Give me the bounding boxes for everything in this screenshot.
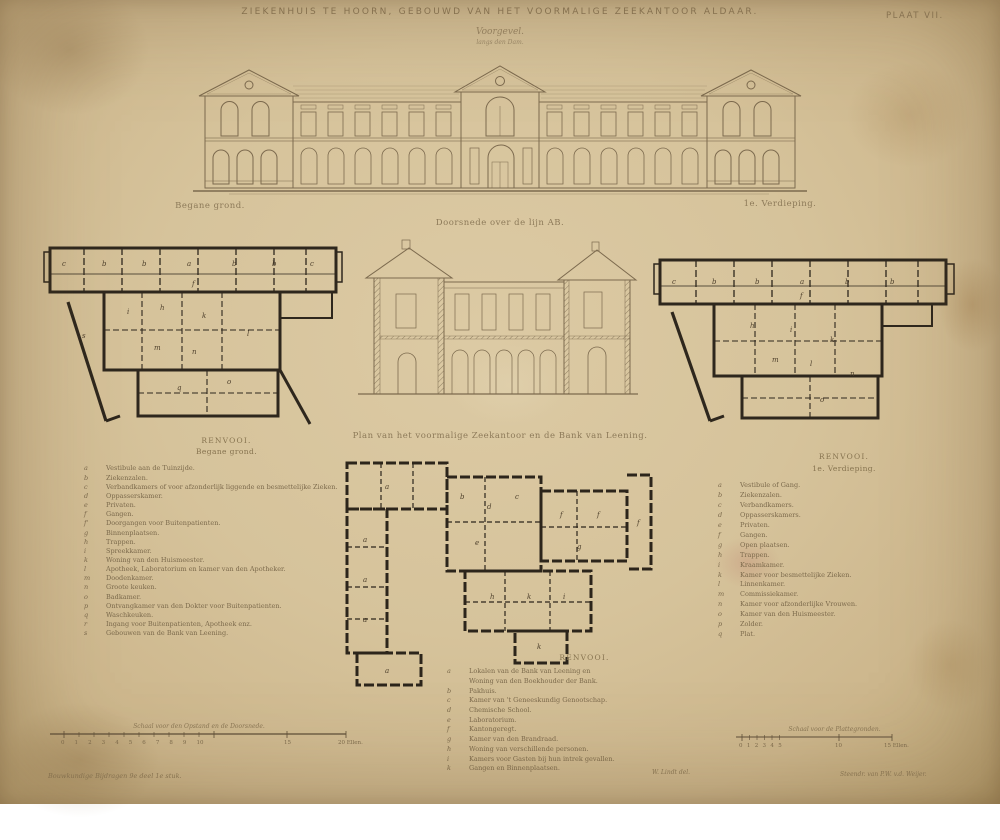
lithographer-credit: Steendr. van P.W. v.d. Weijer. [840, 771, 927, 778]
svg-text:b: b [460, 493, 465, 501]
legend-item-key: g [718, 541, 740, 551]
legend-item-text: Ziekenzalen. [106, 474, 369, 483]
svg-text:h: h [160, 304, 165, 312]
legend-item-text: Linnenkamer. [740, 580, 970, 590]
svg-text:d: d [487, 503, 492, 511]
legend-item: e Privaten. [718, 521, 970, 531]
svg-text:i: i [790, 326, 792, 334]
legend-item: i Kraamkamer. [718, 561, 970, 571]
legend-item-key: p [718, 620, 740, 630]
legend-item-key: o [84, 593, 106, 602]
facade-elevation-drawing [189, 44, 811, 196]
legend-item: d Chemische School. [447, 706, 722, 716]
legend-item: b Pakhuis. [447, 687, 722, 697]
legend-item-key: h [718, 551, 740, 561]
svg-text:c: c [310, 260, 314, 268]
legend-item-text: Vestibule aan de Tuinzijde. [106, 464, 369, 473]
legend-item-text: Commissiekamer. [740, 590, 970, 600]
svg-text:f: f [191, 280, 196, 288]
legend-item: f Kantongeregt. [447, 725, 722, 735]
svg-text:o: o [820, 396, 824, 404]
legend-item: Woning van den Boekhouder der Bank. [447, 677, 722, 687]
legend-item-key: m [84, 574, 106, 583]
legend-item: l Apotheek, Laboratorium en kamer van de… [84, 565, 369, 574]
legend-item: g Open plaatsen. [718, 541, 970, 551]
svg-text:i: i [127, 308, 129, 316]
legend-item-text: Gangen. [740, 531, 970, 541]
legend-item: k Kamer voor besmettelijke Zieken. [718, 571, 970, 581]
svg-text:i: i [563, 593, 565, 601]
legend-item-text: Privaten. [740, 521, 970, 531]
legend-item-key: a [84, 464, 106, 473]
legend-item-key: e [447, 716, 469, 726]
legend-item: p Zolder. [718, 620, 970, 630]
legend-item: n Groote keuken. [84, 583, 369, 592]
legend-item-key: a [718, 481, 740, 491]
legend-item: g Kamer van den Brandraad. [447, 735, 722, 745]
legend-item-text: Pakhuis. [469, 687, 722, 697]
legend-item-text: Kraamkamer. [740, 561, 970, 571]
legend-item-key: d [84, 492, 106, 501]
svg-text:o: o [227, 378, 231, 386]
svg-text:f: f [636, 519, 641, 527]
paper-stain [820, 40, 1000, 190]
legend-item-key: k [447, 764, 469, 774]
legend-item-key: h [447, 745, 469, 755]
legend-item-key: f [718, 531, 740, 541]
legend-item: e Privaten. [84, 501, 369, 510]
legend-item-key: b [447, 687, 469, 697]
legend-item-text: Oppasserskamer. [106, 492, 369, 501]
legend-item-text: Kamer van den Huismeester. [740, 610, 970, 620]
svg-text:b: b [142, 260, 147, 268]
legend-item-key: q [84, 611, 106, 620]
svg-text:a: a [385, 667, 389, 675]
legend-item-key: l [718, 580, 740, 590]
scale-ruler [44, 730, 354, 740]
legend-item: c Verbandkamers of voor afzonderlijk lig… [84, 483, 369, 492]
legend-subtitle: Begane grond. [84, 447, 369, 456]
legend-item-key: f [84, 510, 106, 519]
legend-item: e Laboratorium. [447, 716, 722, 726]
legend-item: k Woning van den Huismeester. [84, 556, 369, 565]
legend-title: RENVOOI. [718, 452, 970, 461]
legend-item: b Ziekenzalen. [84, 474, 369, 483]
svg-text:a: a [187, 260, 191, 268]
legend-item: m Doodenkamer. [84, 574, 369, 583]
legend-item-text: Ingang voor Buitenpatienten, Apotheek en… [106, 620, 369, 629]
legend-item-text: Lokalen van de Bank van Leening en [469, 667, 722, 677]
legend-item-text: Laboratorium. [469, 716, 722, 726]
scale-numbers: 0 1 2 3 4 5 [739, 743, 782, 749]
legend-item-text: Binnenplaatsen. [106, 529, 369, 538]
paper-stain [0, 680, 190, 840]
elevation-subtitle: Voorgevel. [0, 27, 1000, 37]
legend-item: c Kamer van 't Geneeskundig Genootschap. [447, 696, 722, 706]
legend-item-key [447, 677, 469, 687]
plate-number: PLAAT VII. [886, 11, 996, 21]
legend-item: s Gebouwen van de Bank van Leening. [84, 629, 369, 638]
svg-text:m: m [772, 356, 779, 364]
legend-item-key: b [84, 474, 106, 483]
legend-item-text: Verbandkamers. [740, 501, 970, 511]
legend-item: a Vestibule aan de Tuinzijde. [84, 464, 369, 473]
legend-item-text: Woning van den Huismeester. [106, 556, 369, 565]
scale-number-mid: 10 [835, 743, 842, 749]
svg-text:b: b [232, 260, 237, 268]
scale-caption: Schaal voor de Plattegronden. [732, 726, 937, 733]
svg-text:n: n [192, 348, 197, 356]
svg-text:s: s [82, 332, 86, 340]
section-drawing [352, 236, 644, 404]
legend-item-text: Trappen. [740, 551, 970, 561]
scale-caption: Schaal voor den Opstand en de Doorsnede. [44, 723, 354, 730]
legend-item-text: Open plaatsen. [740, 541, 970, 551]
first-floor-plan-drawing: cbbabbfhiklmno [650, 246, 958, 426]
svg-text:b: b [272, 260, 277, 268]
svg-text:c: c [62, 260, 66, 268]
svg-text:c: c [515, 493, 519, 501]
legend-item-key: c [84, 483, 106, 492]
legend-item: o Badkamer. [84, 593, 369, 602]
legend-item-list: a Lokalen van de Bank van Leening en Won… [447, 667, 722, 774]
legend-item-key: l [84, 565, 106, 574]
svg-text:l: l [810, 360, 812, 368]
legend-item-key: k [84, 556, 106, 565]
legend-item-key: g [84, 529, 106, 538]
svg-text:k: k [527, 593, 531, 601]
svg-text:b: b [755, 278, 760, 286]
legend-item-key: f' [84, 519, 106, 528]
legend-item: b Ziekenzalen. [718, 491, 970, 501]
legend-item-key: h [84, 538, 106, 547]
legend-item: p Ontvangkamer van den Dokter voor Buite… [84, 602, 369, 611]
legend-item: h Trappen. [718, 551, 970, 561]
legend-item-key: e [84, 501, 106, 510]
svg-text:b: b [890, 278, 895, 286]
svg-text:b: b [712, 278, 717, 286]
legend-item-key: k [718, 571, 740, 581]
first-floor-label: 1e. Verdieping. [690, 199, 870, 209]
legend-item: m Commissiekamer. [718, 590, 970, 600]
svg-text:k: k [537, 643, 541, 651]
draughtsman-credit: W. Lindt del. [652, 769, 690, 776]
legend-item: i Spreekkamer. [84, 547, 369, 556]
scale-number-mid: 15 [284, 740, 291, 746]
legend-item-list: a Vestibule aan de Tuinzijde. b Ziekenza… [84, 464, 369, 638]
svg-text:h: h [750, 322, 755, 330]
scale-number-end: 20 Ellen. [338, 740, 363, 746]
legend-item: q Plat. [718, 630, 970, 640]
svg-text:a: a [385, 483, 389, 491]
legend-item-key: b [718, 491, 740, 501]
legend-item-key: p [84, 602, 106, 611]
legend-item-text: Trappen. [106, 538, 369, 547]
legend-title: RENVOOI. [447, 653, 722, 662]
legend-item: o Kamer van den Huismeester. [718, 610, 970, 620]
ground-floor-label: Begane grond. [110, 201, 310, 211]
svg-text:m: m [154, 344, 161, 352]
scale-numbers: 0 1 2 3 4 5 6 7 8 9 10 [61, 740, 203, 746]
legend-item-text: Vestibule of Gang. [740, 481, 970, 491]
svg-text:c: c [672, 278, 676, 286]
legend-item-key: g [447, 735, 469, 745]
legend-item-key: c [718, 501, 740, 511]
legend-item-key: i [84, 547, 106, 556]
legend-item-text: Groote keuken. [106, 583, 369, 592]
section-label: Doorsnede over de lijn AB. [390, 218, 610, 228]
svg-text:k: k [830, 336, 834, 344]
legend-item-text: Gebouwen van de Bank van Leening. [106, 629, 369, 638]
legend-item-text: Doodenkamer. [106, 574, 369, 583]
legend-item-text: Kamer van 't Geneeskundig Genootschap. [469, 696, 722, 706]
legend-item: g Binnenplaatsen. [84, 529, 369, 538]
legend-item-list: a Vestibule of Gang. b Ziekenzalen. c Ve… [718, 481, 970, 640]
legend-item-text: Doorgangen voor Buitenpatienten. [106, 519, 369, 528]
svg-text:g: g [577, 543, 582, 551]
legend-item: f' Doorgangen voor Buitenpatienten. [84, 519, 369, 528]
legend-item-text: Plat. [740, 630, 970, 640]
legend-item-key: n [84, 583, 106, 592]
paper-stain [0, 0, 180, 140]
legend-item-text: Verbandkamers of voor afzonderlijk ligge… [106, 483, 369, 492]
svg-text:f: f [596, 511, 601, 519]
legend-item: i Kamers voor Gasten bij hun intrek geva… [447, 755, 722, 765]
legend-item: a Lokalen van de Bank van Leening en [447, 667, 722, 677]
legend-subtitle: 1e. Verdieping. [718, 464, 970, 473]
svg-text:f: f [799, 292, 804, 300]
legend-item-key: n [718, 600, 740, 610]
legend-item-text: Kantongeregt. [469, 725, 722, 735]
plate-title: ZIEKENHUIS TE HOORN, GEBOUWD VAN HET VOO… [0, 7, 1000, 17]
legend-item-key: q [718, 630, 740, 640]
legend-item-text: Chemische School. [469, 706, 722, 716]
legend-ground-floor: RENVOOI. Begane grond. a Vestibule aan d… [84, 436, 369, 638]
legend-item-key: f [447, 725, 469, 735]
svg-text:q: q [177, 384, 182, 392]
legend-item-text: Badkamer. [106, 593, 369, 602]
legend-item: r Ingang voor Buitenpatienten, Apotheek … [84, 620, 369, 629]
legend-item-text: Spreekkamer. [106, 547, 369, 556]
scale-ruler [732, 733, 937, 743]
legend-site-plan: RENVOOI. a Lokalen van de Bank van Leeni… [447, 653, 722, 774]
legend-item: a Vestibule of Gang. [718, 481, 970, 491]
scale-labels: 0 1 2 3 4 5 10 15 Ellen. [732, 743, 937, 752]
legend-item: h Woning van verschillende personen. [447, 745, 722, 755]
legend-item-key: c [447, 696, 469, 706]
svg-text:f: f [559, 511, 564, 519]
legend-item-key: i [718, 561, 740, 571]
legend-item: f Gangen. [84, 510, 369, 519]
legend-item-key: e [718, 521, 740, 531]
svg-text:e: e [475, 539, 479, 547]
scale-labels: 0 1 2 3 4 5 6 7 8 9 10 15 20 Ellen. [44, 740, 354, 749]
legend-item-text: Kamer voor afzonderlijke Vrouwen. [740, 600, 970, 610]
legend-item-text: Kamer voor besmettelijke Zieken. [740, 571, 970, 581]
legend-item: l Linnenkamer. [718, 580, 970, 590]
legend-item: h Trappen. [84, 538, 369, 547]
legend-item-key: r [84, 620, 106, 629]
legend-item-key: d [447, 706, 469, 716]
legend-item-text: Kamer van den Brandraad. [469, 735, 722, 745]
legend-item-text: Oppasserskamers. [740, 511, 970, 521]
legend-item-key: d [718, 511, 740, 521]
svg-text:b: b [845, 278, 850, 286]
svg-text:k: k [202, 312, 206, 320]
legend-item-text: Gangen. [106, 510, 369, 519]
legend-item-text: Apotheek, Laboratorium en kamer van den … [106, 565, 369, 574]
legend-item-text: Woning van verschillende personen. [469, 745, 722, 755]
svg-text:n: n [850, 370, 855, 378]
legend-item-key: i [447, 755, 469, 765]
svg-text:a: a [800, 278, 804, 286]
svg-text:b: b [102, 260, 107, 268]
scale-bar-elevation: Schaal voor den Opstand en de Doorsnede.… [44, 723, 354, 749]
legend-item-text: Privaten. [106, 501, 369, 510]
svg-text:l: l [247, 330, 249, 338]
legend-first-floor: RENVOOI. 1e. Verdieping. a Vestibule of … [718, 452, 970, 640]
legend-item-text: Zolder. [740, 620, 970, 630]
scale-number-end: 15 Ellen. [884, 743, 909, 749]
legend-item-key: a [447, 667, 469, 677]
legend-item-key: m [718, 590, 740, 600]
legend-item: f Gangen. [718, 531, 970, 541]
legend-title: RENVOOI. [84, 436, 369, 445]
publication-credit: Bouwkundige Bijdragen 9e deel 1e stuk. [48, 772, 182, 780]
legend-item: n Kamer voor afzonderlijke Vrouwen. [718, 600, 970, 610]
legend-item-text: Woning van den Boekhouder der Bank. [469, 677, 722, 687]
ground-floor-plan-drawing: cbbabbcfihklnmqos [42, 218, 344, 430]
legend-item-text: Waschkeuken. [106, 611, 369, 620]
legend-item-key: s [84, 629, 106, 638]
scale-bar-plans: Schaal voor de Plattegronden. 0 1 2 3 4 … [732, 726, 937, 752]
scanned-plate: ZIEKENHUIS TE HOORN, GEBOUWD VAN HET VOO… [0, 0, 1000, 804]
legend-item-text: Ziekenzalen. [740, 491, 970, 501]
svg-text:h: h [490, 593, 495, 601]
legend-item-text: Kamers voor Gasten bij hun intrek gevall… [469, 755, 722, 765]
legend-item-key: o [718, 610, 740, 620]
legend-item: q Waschkeuken. [84, 611, 369, 620]
legend-item-text: Ontvangkamer van den Dokter voor Buitenp… [106, 602, 369, 611]
legend-item: d Oppasserskamer. [84, 492, 369, 501]
legend-item: c Verbandkamers. [718, 501, 970, 511]
legend-item: d Oppasserskamers. [718, 511, 970, 521]
